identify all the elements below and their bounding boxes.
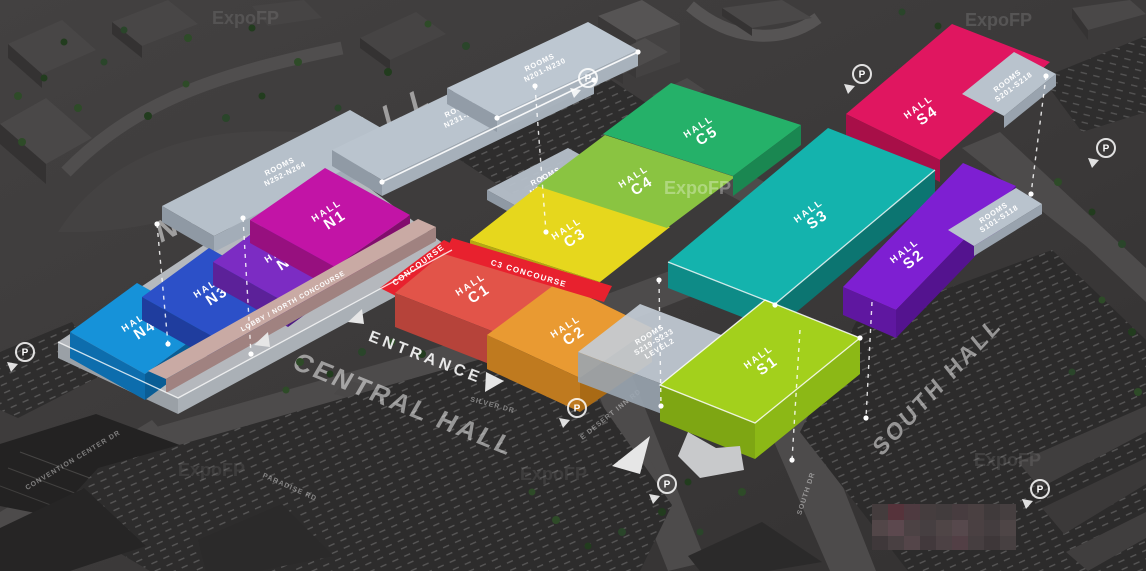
watermark-text: ExpoFP [520,464,587,484]
svg-text:P: P [859,70,866,81]
censored-watermark-mosaic [872,504,1016,550]
watermark-text: ExpoFP [212,8,279,28]
watermark-text: ExpoFP [178,460,245,480]
map-canvas: NORTH HALL CENTRAL HALL SOUTH HALL SILVE… [0,0,1146,571]
svg-text:P: P [574,404,581,415]
watermark-text: ExpoFP [664,178,731,198]
svg-text:P: P [22,348,29,359]
expo-floorplan-map: NORTH HALL CENTRAL HALL SOUTH HALL SILVE… [0,0,1146,571]
svg-text:P: P [1037,485,1044,496]
svg-text:P: P [585,74,592,85]
svg-text:P: P [664,480,671,491]
watermark-text: ExpoFP [974,450,1041,470]
watermark-text: ExpoFP [965,10,1032,30]
svg-text:P: P [1103,144,1110,155]
